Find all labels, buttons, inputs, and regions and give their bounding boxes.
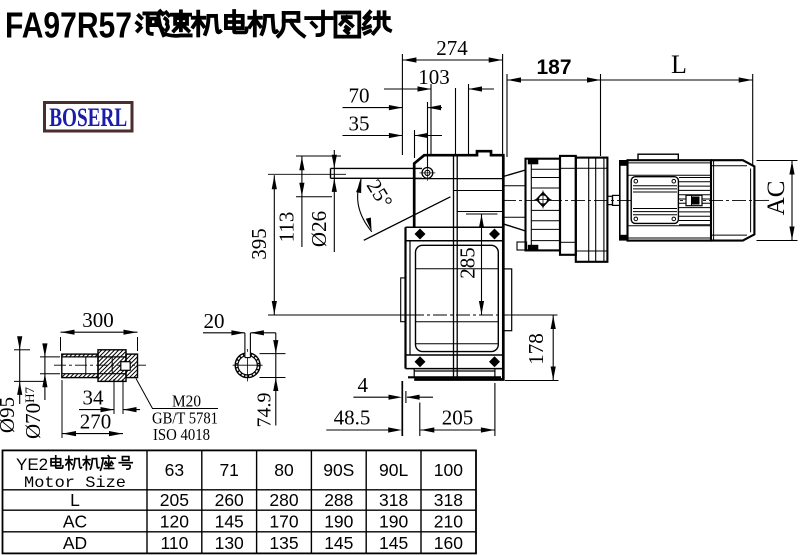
svg-text:4: 4 [358,373,369,397]
svg-text:178: 178 [524,333,548,365]
svg-text:100: 100 [434,460,463,480]
svg-text:285: 285 [456,247,480,279]
svg-text:300: 300 [82,308,114,332]
svg-text:90S: 90S [323,460,354,480]
svg-text:70: 70 [349,84,370,108]
svg-text:113: 113 [275,212,299,243]
svg-text:74.9: 74.9 [254,393,276,428]
svg-text:190: 190 [324,512,353,532]
svg-text:145: 145 [379,533,408,553]
svg-text:190: 190 [379,512,408,532]
svg-text:135: 135 [269,533,298,553]
svg-text:395: 395 [247,228,271,260]
svg-text:103: 103 [418,65,450,89]
svg-text:48.5: 48.5 [334,406,371,430]
svg-text:YE2: YE2 [16,455,48,474]
svg-text:20: 20 [204,309,225,333]
svg-text:Ø26: Ø26 [307,211,331,247]
svg-text:260: 260 [215,490,244,510]
svg-text:BOSERL: BOSERL [49,103,127,132]
svg-text:AD: AD [63,533,87,553]
svg-text:130: 130 [215,533,244,553]
svg-text:35: 35 [349,112,370,136]
svg-text:FA97R57: FA97R57 [5,5,132,46]
svg-text:Ø95: Ø95 [0,397,19,433]
svg-text:ISO 4018: ISO 4018 [153,425,210,444]
svg-text:288: 288 [324,490,353,510]
svg-text:187: 187 [536,56,571,79]
svg-text:318: 318 [434,490,463,510]
svg-text:160: 160 [434,533,463,553]
svg-text:270: 270 [80,410,112,434]
svg-text:145: 145 [324,533,353,553]
svg-text:318: 318 [379,490,408,510]
svg-text:280: 280 [269,490,298,510]
svg-text:110: 110 [160,533,188,553]
svg-text:170: 170 [269,512,298,532]
svg-text:63: 63 [165,460,184,480]
svg-text:90L: 90L [379,460,408,480]
svg-text:AC: AC [63,512,87,532]
svg-text:34: 34 [83,386,105,410]
svg-text:L: L [70,490,80,510]
svg-text:120: 120 [160,512,189,532]
svg-text:274: 274 [436,36,468,60]
svg-text:205: 205 [442,406,474,430]
svg-text:145: 145 [215,512,244,532]
svg-text:L: L [671,50,687,79]
svg-text:AC: AC [763,181,790,216]
svg-text:71: 71 [219,460,238,480]
svg-text:205: 205 [160,490,189,510]
svg-text:80: 80 [274,460,294,480]
svg-text:210: 210 [434,512,463,532]
